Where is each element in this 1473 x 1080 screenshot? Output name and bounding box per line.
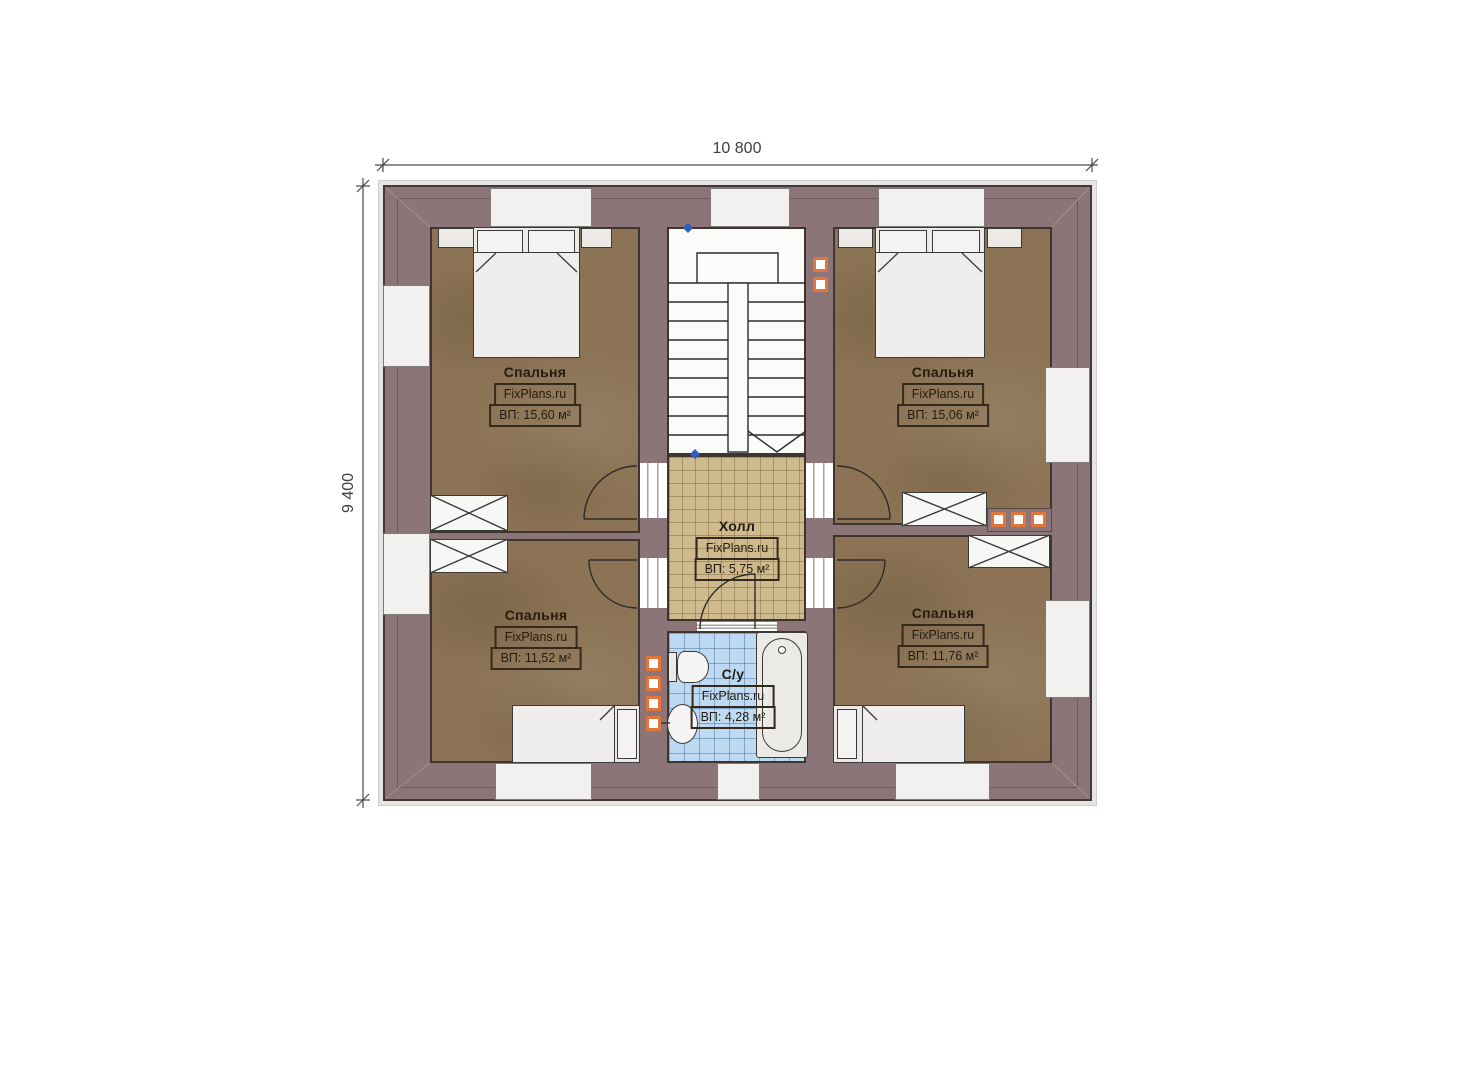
nightstand: [438, 228, 474, 248]
brand-label: FixPlans.ru: [494, 383, 577, 406]
room-label-bathroom: С/у FixPlans.ru ВП: 4,28 м²: [691, 666, 776, 729]
nightstand: [838, 228, 873, 248]
area-label: ВП: 4,28 м²: [691, 706, 776, 729]
vent-icon: [1011, 512, 1026, 527]
pillow: [932, 230, 980, 253]
room-label-bedroom-top-left: Спальня FixPlans.ru ВП: 15,60 м²: [489, 364, 581, 427]
window: [717, 763, 760, 800]
room-name: Спальня: [505, 607, 568, 623]
brand-label: FixPlans.ru: [495, 626, 578, 649]
area-label: ВП: 11,76 м²: [898, 645, 989, 668]
brand-label: FixPlans.ru: [692, 685, 775, 708]
dimension-line-left: [356, 178, 370, 808]
area-label: ВП: 11,52 м²: [491, 647, 582, 670]
vent-icon: [646, 656, 661, 671]
area-label: ВП: 15,06 м²: [897, 404, 989, 427]
door-opening: [806, 463, 833, 518]
room-label-bedroom-top-right: Спальня FixPlans.ru ВП: 15,06 м²: [897, 364, 989, 427]
dormer-window: [710, 188, 790, 227]
mattress: [862, 705, 965, 763]
floor-plan-canvas: Спальня FixPlans.ru ВП: 15,60 м² Спальня…: [0, 0, 1473, 1080]
dimension-line-top: [375, 158, 1098, 172]
dormer-window: [490, 188, 592, 227]
window: [383, 285, 430, 367]
mattress: [875, 252, 985, 358]
pillow: [617, 709, 637, 759]
door-opening: [697, 622, 777, 631]
room-stairwell: [667, 227, 806, 455]
area-label: ВП: 15,60 м²: [489, 404, 581, 427]
mattress: [473, 252, 580, 358]
dimension-width-label: 10 800: [713, 140, 762, 158]
door-opening: [640, 463, 667, 518]
door-opening: [640, 558, 667, 608]
pillow: [837, 709, 857, 759]
window: [495, 763, 592, 800]
window: [895, 763, 990, 800]
area-label: ВП: 5,75 м²: [695, 558, 780, 581]
vent-icon: [646, 696, 661, 711]
pillow: [879, 230, 927, 253]
room-label-hall: Холл FixPlans.ru ВП: 5,75 м²: [695, 518, 780, 581]
wardrobe: [968, 535, 1050, 568]
vent-icon: [991, 512, 1006, 527]
room-name: Спальня: [912, 364, 975, 380]
room-name: Холл: [719, 518, 755, 534]
dormer-window: [878, 188, 985, 227]
nightstand: [581, 228, 612, 248]
room-name: С/у: [722, 666, 745, 682]
vent-icon: [813, 277, 828, 292]
mattress: [512, 705, 615, 763]
room-label-bedroom-bottom-right: Спальня FixPlans.ru ВП: 11,76 м²: [898, 605, 989, 668]
pillow: [528, 230, 575, 253]
door-opening: [806, 558, 833, 608]
window: [1045, 367, 1090, 463]
wardrobe: [430, 495, 508, 531]
brand-label: FixPlans.ru: [902, 383, 985, 406]
vent-icon: [1031, 512, 1046, 527]
bathtub-drain: [778, 646, 786, 654]
window: [1045, 600, 1090, 698]
nightstand: [987, 228, 1022, 248]
brand-label: FixPlans.ru: [696, 537, 779, 560]
window: [383, 533, 430, 615]
pillow: [477, 230, 523, 253]
room-name: Спальня: [504, 364, 567, 380]
wardrobe: [430, 539, 508, 573]
vent-icon: [646, 676, 661, 691]
room-label-bedroom-bottom-left: Спальня FixPlans.ru ВП: 11,52 м²: [491, 607, 582, 670]
dimension-height-label: 9 400: [340, 473, 358, 513]
vent-icon: [813, 257, 828, 272]
toilet-tank: [668, 652, 677, 682]
room-name: Спальня: [912, 605, 975, 621]
wardrobe: [902, 492, 987, 526]
brand-label: FixPlans.ru: [902, 624, 985, 647]
vent-icon: [646, 716, 661, 731]
